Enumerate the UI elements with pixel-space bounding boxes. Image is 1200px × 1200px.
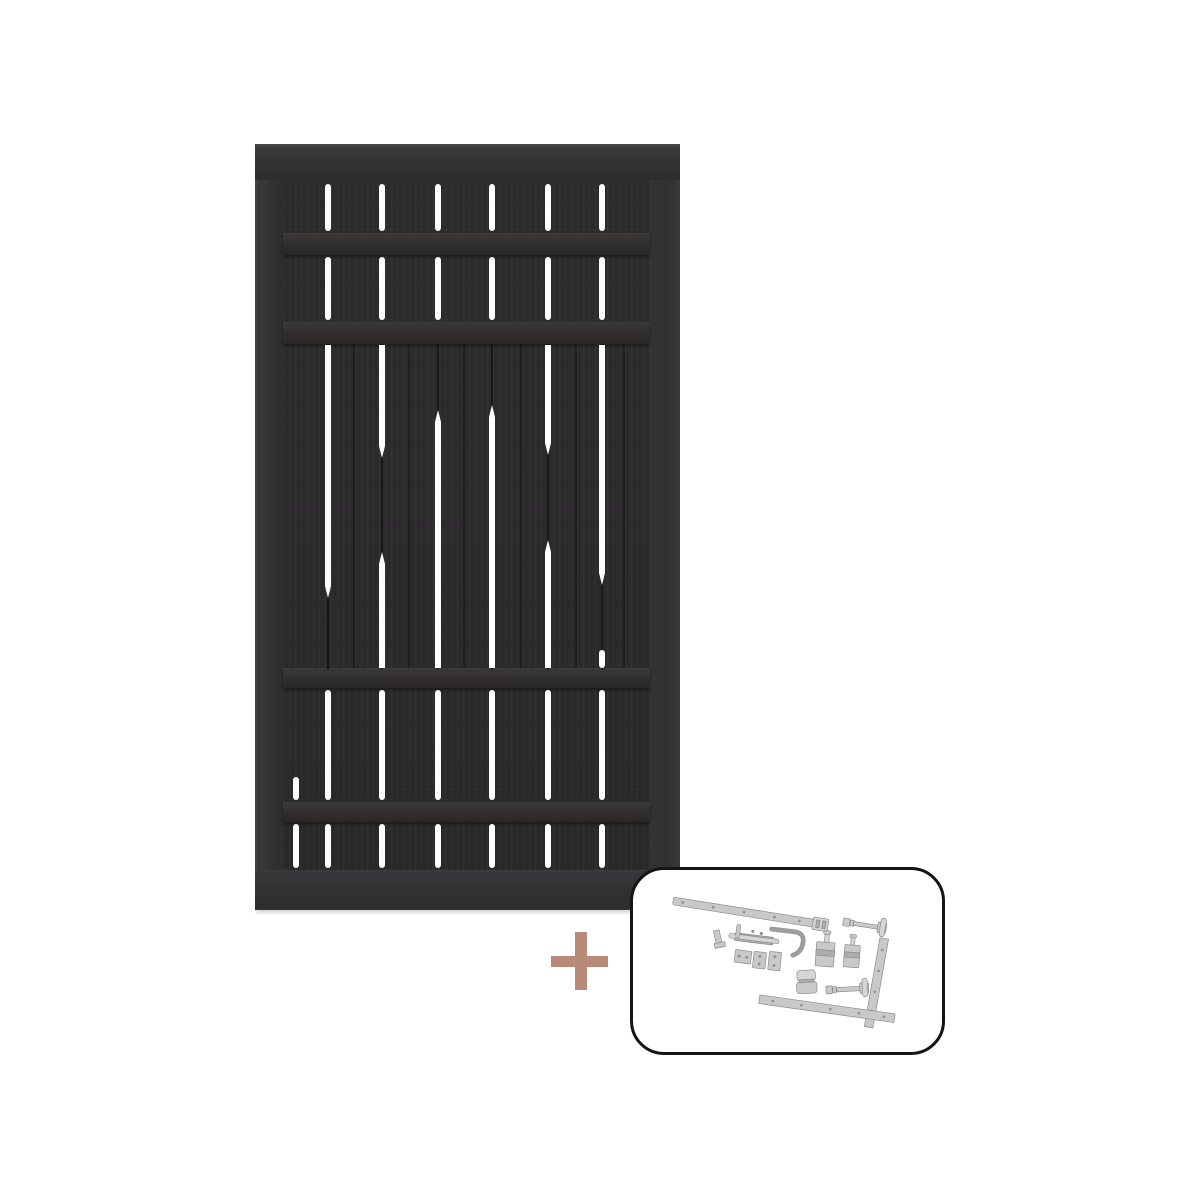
slat-gap (435, 410, 441, 668)
slat-gap (599, 257, 605, 320)
slat-gap (545, 690, 551, 800)
hardware-hinge-pin-block-1-icon (815, 930, 836, 967)
slat-gap (325, 690, 331, 800)
slat-gap (435, 257, 441, 320)
hardware-long-hinge-strap-icon (672, 895, 829, 932)
hardware-kit-illustration (633, 870, 942, 1052)
slat-gap (379, 690, 385, 800)
slat-gap (545, 345, 551, 455)
slat-gap (379, 345, 385, 458)
hardware-keeper-plate-3-icon (768, 951, 782, 971)
slat-gap (435, 690, 441, 800)
hardware-kit-panel (630, 867, 945, 1055)
slat-gap (325, 184, 331, 231)
slat-gap (545, 824, 551, 868)
slat-gap (379, 552, 385, 668)
hardware-keeper-plate-2-icon (752, 951, 766, 969)
gate-right-stile (650, 180, 680, 872)
slat-gap (545, 540, 551, 668)
gate-batten (283, 802, 650, 822)
plus-icon (550, 931, 610, 991)
hardware-hinge-pin-block-2-icon (843, 934, 861, 968)
gate-batten (283, 233, 650, 255)
hardware-spring-clip-icon (796, 970, 818, 994)
hardware-keeper-plate-1-icon (734, 949, 752, 964)
board-gap-line (520, 344, 522, 668)
hardware-hinge-pin-bolt-top-icon (842, 912, 888, 937)
board-gap-line (623, 344, 625, 668)
slat-gap (293, 824, 299, 868)
gate-batten (283, 668, 650, 688)
board-gap-line (463, 344, 465, 668)
hardware-drop-bolt-icon (728, 923, 780, 945)
slat-gap (325, 824, 331, 868)
slat-gap (489, 257, 495, 320)
slat-gap (489, 824, 495, 868)
slat-gap (489, 690, 495, 800)
slat-gap (435, 824, 441, 868)
slat-gap (379, 257, 385, 320)
slat-gap (599, 345, 605, 585)
slat-gap (545, 184, 551, 231)
gate-batten (283, 322, 650, 344)
slat-gap (599, 184, 605, 231)
hardware-corner-clip-icon (712, 929, 726, 948)
gate-bottom-rail (255, 870, 680, 910)
slat-gap (489, 405, 495, 668)
slat-gap (293, 777, 299, 800)
slat-gap (545, 257, 551, 320)
slat-gap (599, 690, 605, 800)
slat-gap (489, 184, 495, 231)
slat-gap (379, 824, 385, 868)
slat-gap (325, 257, 331, 320)
gate-board-panel (283, 182, 650, 870)
hardware-hinge-pin-bolt-bottom-icon (826, 978, 870, 999)
slat-gap (379, 184, 385, 231)
slat-gap (435, 184, 441, 231)
slat-gap (599, 824, 605, 868)
slat-gap (325, 345, 331, 598)
board-gap-line (353, 344, 355, 668)
gate-top-rail (255, 144, 680, 182)
gate-ground-shadow (256, 909, 680, 915)
gate-left-stile (255, 180, 283, 872)
product-image (0, 0, 1200, 1200)
slat-gap (599, 650, 605, 668)
board-gap-line (575, 344, 577, 668)
board-gap-line (408, 344, 410, 668)
fence-gate (255, 144, 680, 910)
